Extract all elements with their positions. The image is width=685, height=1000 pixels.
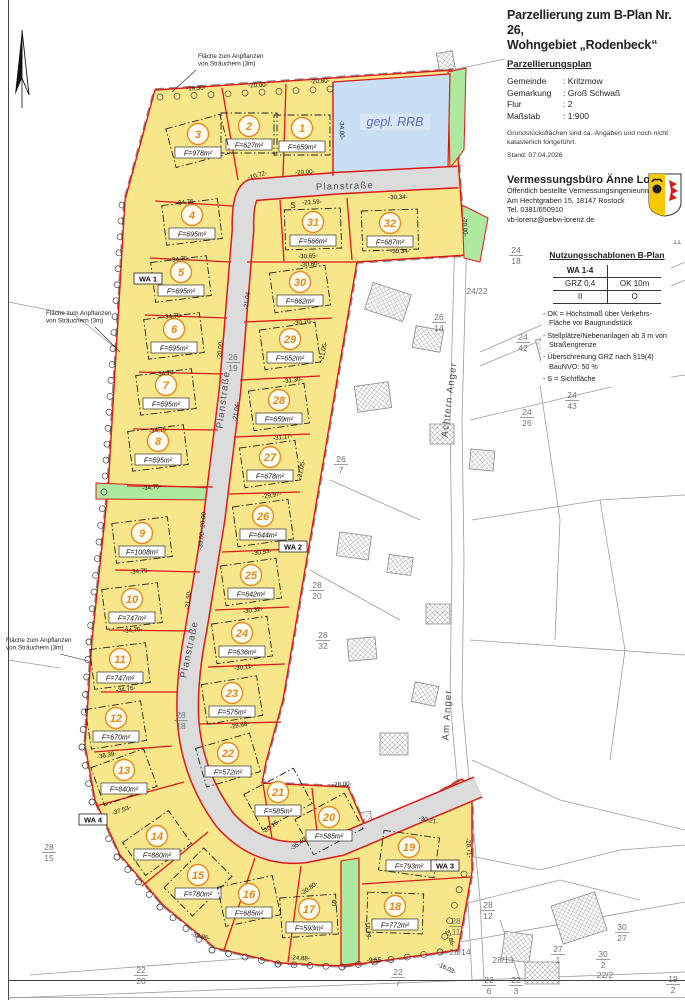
flurstueck-label: 28/13 <box>492 955 514 965</box>
flurstueck-label: 28/14 <box>449 947 471 957</box>
parcel-area: F=585m² <box>315 833 344 840</box>
parcel-area: F=772m² <box>381 922 410 929</box>
svg-text:28: 28 <box>312 580 322 590</box>
parcel-area: F=695m² <box>167 288 196 295</box>
svg-text:15: 15 <box>44 853 54 863</box>
parcel-area: F=793m² <box>395 863 424 870</box>
nutzungsschablone-cell: OK 10m <box>608 277 661 290</box>
parcel-number: 14 <box>151 831 163 843</box>
svg-text:26: 26 <box>228 352 238 362</box>
plan-info-row: Flur: 2 <box>507 99 685 110</box>
parcel-area: F=840m² <box>110 786 139 793</box>
parcel-area: F=978m² <box>184 150 213 157</box>
plan-note: Grundstücksflächen sind ca.-Angaben und … <box>507 130 685 148</box>
svg-text:27: 27 <box>553 944 563 954</box>
wa-zone-label: WA 1 <box>134 273 162 284</box>
svg-text:26: 26 <box>336 454 346 464</box>
nutzungsschablone-cell: GRZ 0,4 <box>553 277 608 290</box>
parcel-number: 30 <box>294 277 307 289</box>
svg-text:24: 24 <box>522 407 532 417</box>
dimension-label: -20,00- <box>295 168 315 176</box>
svg-text:Fläche zum Anpflanzen: Fläche zum Anpflanzen <box>6 637 72 644</box>
plan-title-line2: Wohngebiet „Rodenbeck“ <box>507 38 685 53</box>
dimension-label: -28,00- <box>332 780 352 788</box>
wa-zone-label: WA 2 <box>279 541 307 552</box>
svg-text:Fläche zum Anpflanzen: Fläche zum Anpflanzen <box>198 53 264 60</box>
svg-text:WA 3: WA 3 <box>436 862 454 871</box>
svg-text:26: 26 <box>522 418 532 428</box>
wa-zone-label: WA 3 <box>431 860 459 871</box>
parcel-area: F=575m² <box>218 709 247 716</box>
svg-text:von Sträuchern (3m): von Sträuchern (3m) <box>6 645 63 652</box>
svg-text:14: 14 <box>434 323 444 333</box>
plan-title-line1: Parzellierung zum B-Plan Nr. 26, <box>507 8 685 38</box>
parcel-area: F=695m² <box>160 345 189 352</box>
rrb-label: gepl. RRB <box>360 114 430 130</box>
svg-text:32: 32 <box>318 641 328 651</box>
dimension-label: -24,88- <box>290 954 310 962</box>
parcel-area: F=659m² <box>265 416 294 423</box>
parcel-number: 29 <box>283 334 297 346</box>
parcel-area: F=747m² <box>118 615 147 622</box>
parcel-number: 27 <box>263 452 277 464</box>
nutzungsschablone-block: Nutzungsschablonen B-Plan WA 1-4GRZ 0,4O… <box>541 248 671 388</box>
dimension-label: -30,34- <box>388 194 408 202</box>
nutzungsschablone-note: - OK = Höchstmaß über Verkehrs-Fläche vo… <box>543 309 671 328</box>
parcel-number: 8 <box>155 436 162 448</box>
svg-text:22: 22 <box>136 965 146 975</box>
plan-info-table: Gemeinde: KritzmowGemarkung: Groß Schwaß… <box>507 76 685 122</box>
parcel-area: F=670m² <box>102 734 131 741</box>
parcel-number: 15 <box>192 870 205 882</box>
parcel-number: 6 <box>171 324 178 336</box>
dimension-label: -20,60- <box>310 77 330 85</box>
parcel-area: F=593m² <box>295 925 324 932</box>
parcel-number: 17 <box>303 904 316 916</box>
sichtflaeche-mark: S <box>290 201 295 210</box>
parcel-area: F=642m² <box>237 591 266 598</box>
plan-sheet: 1F=659m²2F=627m²3F=978m²4F=695m²5F=695m²… <box>0 0 685 1000</box>
street-name: Planstraße <box>316 180 374 193</box>
parcel-area: F=678m² <box>256 473 285 480</box>
parcel-number: 16 <box>243 889 256 901</box>
nutzungsschablone-table: WA 1-4GRZ 0,4OK 10mIIO <box>553 265 661 304</box>
svg-text:18: 18 <box>176 721 186 731</box>
svg-text:19: 19 <box>668 974 678 984</box>
sichtflaeche-mark: S <box>331 899 336 908</box>
parcel-number: 2 <box>245 121 252 133</box>
parcel-area: F=695m² <box>178 231 207 238</box>
svg-text:26: 26 <box>434 312 444 322</box>
parcel-area: F=585m² <box>264 808 293 815</box>
parcel-number: 21 <box>271 787 284 799</box>
dimension-label: -20,00- <box>248 81 268 89</box>
svg-text:22: 22 <box>393 967 403 977</box>
svg-text:27: 27 <box>617 933 627 943</box>
svg-text:28: 28 <box>451 916 461 926</box>
svg-text:WA 1: WA 1 <box>139 275 157 284</box>
svg-text:43: 43 <box>567 401 577 411</box>
svg-text:12: 12 <box>483 911 493 921</box>
svg-text:1: 1 <box>556 955 561 965</box>
plan-stand: Stand: 07.04.2026 <box>507 152 685 159</box>
parcel-area: F=780m² <box>184 891 213 898</box>
svg-text:20: 20 <box>312 591 322 601</box>
parcel-area: F=860m² <box>143 852 172 859</box>
parcel-area: F=1008m² <box>126 549 159 556</box>
parcel-area: F=572m² <box>214 769 243 776</box>
plan-info-row: Maßstab: 1:900 <box>507 111 685 122</box>
svg-text:WA 4: WA 4 <box>84 816 103 825</box>
svg-text:7: 7 <box>339 465 344 475</box>
plan-note-line1: Grundstücksflächen sind ca.-Angaben und … <box>507 130 685 139</box>
svg-text:gepl. RRB: gepl. RRB <box>367 115 424 129</box>
svg-text:von Sträuchern (3m): von Sträuchern (3m) <box>46 318 103 325</box>
nutzungsschablone-cell: II <box>553 290 608 303</box>
plan-info-row: Gemeinde: Kritzmow <box>507 76 685 87</box>
parcel-number: 31 <box>307 217 319 229</box>
parcel-number: 4 <box>188 210 195 222</box>
parcel-number: 20 <box>322 812 336 824</box>
svg-text:2: 2 <box>601 960 606 970</box>
parcel-area: F=566m² <box>299 238 328 245</box>
parcel-area: F=652m² <box>276 355 305 362</box>
svg-text:24/22: 24/22 <box>466 286 488 296</box>
plan-subtitle: Parzellierungsplan <box>507 59 685 70</box>
svg-text:28/13: 28/13 <box>492 955 514 965</box>
svg-text:28: 28 <box>318 630 328 640</box>
svg-text:von Sträuchern (3m): von Sträuchern (3m) <box>198 61 255 68</box>
nutzungsschablone-cell: WA 1-4 <box>553 265 608 278</box>
nutzungsschablone-cell <box>608 265 661 278</box>
parcel-number: 5 <box>178 267 185 279</box>
parcel-area: F=695m² <box>152 401 181 408</box>
nutzungsschablone-note: - Überschreitung GRZ nach §19(4) BauNVO:… <box>543 352 671 371</box>
parcel-number: 32 <box>384 218 396 230</box>
svg-text:28: 28 <box>44 842 54 852</box>
title-block: Parzellierung zum B-Plan Nr. 26, Wohngeb… <box>505 6 685 163</box>
parcel-area: F=685m² <box>235 910 264 917</box>
parcel-number: 24 <box>235 628 248 640</box>
parcel-number: 22 <box>221 748 234 760</box>
flurstueck-label: 22/2 <box>597 970 614 980</box>
parcel-number: 11 <box>114 654 125 666</box>
plan-info-row: Gemarkung: Groß Schwaß <box>507 88 685 99</box>
dimension-label: -30,34- <box>390 248 410 256</box>
nutzungsschablone-note: - S = Sichtfläche <box>543 374 671 383</box>
svg-text:24: 24 <box>567 390 577 400</box>
svg-text:28: 28 <box>176 710 186 720</box>
parcel-area: F=695m² <box>144 457 173 464</box>
svg-text:30: 30 <box>598 949 608 959</box>
parcel-number: 25 <box>244 570 258 582</box>
svg-text:Fläche zum Anpflanzen: Fläche zum Anpflanzen <box>46 310 112 317</box>
svg-text:3: 3 <box>514 986 519 996</box>
parcel-area: F=644m² <box>249 532 278 539</box>
parcel-area: F=627m² <box>235 142 264 149</box>
dimension-label: -34,00- <box>338 120 346 140</box>
parcel-number: 10 <box>126 594 139 606</box>
svg-text:22/2: 22/2 <box>597 970 614 980</box>
parcel-number: 1 <box>299 123 305 135</box>
parcel-number: 12 <box>110 713 122 725</box>
dimension-label: -9,65- <box>367 957 383 964</box>
svg-text:7: 7 <box>396 978 401 988</box>
parcel-number: 26 <box>256 511 270 523</box>
svg-text:28: 28 <box>483 900 493 910</box>
dimension-label: -20,00- <box>460 217 468 237</box>
flurstueck-label: 24/22 <box>466 286 488 296</box>
parcel-number: 7 <box>163 380 170 392</box>
wa-zone-label: WA 4 <box>79 814 107 825</box>
coat-of-arms-icon <box>647 172 683 218</box>
parcel-number: 19 <box>403 842 416 854</box>
parcel-number: 23 <box>225 688 238 700</box>
parcel-area: F=747m² <box>106 675 135 682</box>
svg-text:6: 6 <box>487 986 492 996</box>
svg-text:28/14: 28/14 <box>449 947 471 957</box>
dimension-label: -21,59- <box>302 198 322 206</box>
nutzungsschablone-note: - Stellplätze/Nebenanlagen ab 3 m von St… <box>543 331 671 350</box>
svg-text:11: 11 <box>452 927 461 937</box>
surveyor-block: Vermessungsbüro Änne Lorenz Öffentlich b… <box>505 172 685 240</box>
svg-text:2: 2 <box>671 985 676 995</box>
parcel-area: F=659m² <box>288 144 317 151</box>
parcel-number: 9 <box>139 528 146 540</box>
dimension-label: -30,65- <box>298 252 318 260</box>
svg-text:WA 2: WA 2 <box>284 543 302 552</box>
nutzungsschablone-heading: Nutzungsschablonen B-Plan <box>543 250 671 260</box>
parcel-area: F=662m² <box>286 298 315 305</box>
parcel-area: F=636m² <box>228 649 257 656</box>
nutzungsschablone-notes: - OK = Höchstmaß über Verkehrs-Fläche vo… <box>543 309 671 384</box>
parcel-number: 13 <box>118 765 130 777</box>
legend-panel: Parzellierung zum B-Plan Nr. 26, Wohngeb… <box>505 6 685 387</box>
svg-text:30: 30 <box>617 922 627 932</box>
parcel-number: 28 <box>272 395 286 407</box>
parcel-number: 18 <box>389 901 402 913</box>
nutzungsschablone-cell: O <box>608 290 661 303</box>
plan-note-line2: katasterlich fortgeführt. <box>507 139 685 148</box>
parcel-area: F=687m² <box>376 239 405 246</box>
dimension-label: -19,30- <box>186 84 206 92</box>
parcel-number: 3 <box>195 129 201 141</box>
